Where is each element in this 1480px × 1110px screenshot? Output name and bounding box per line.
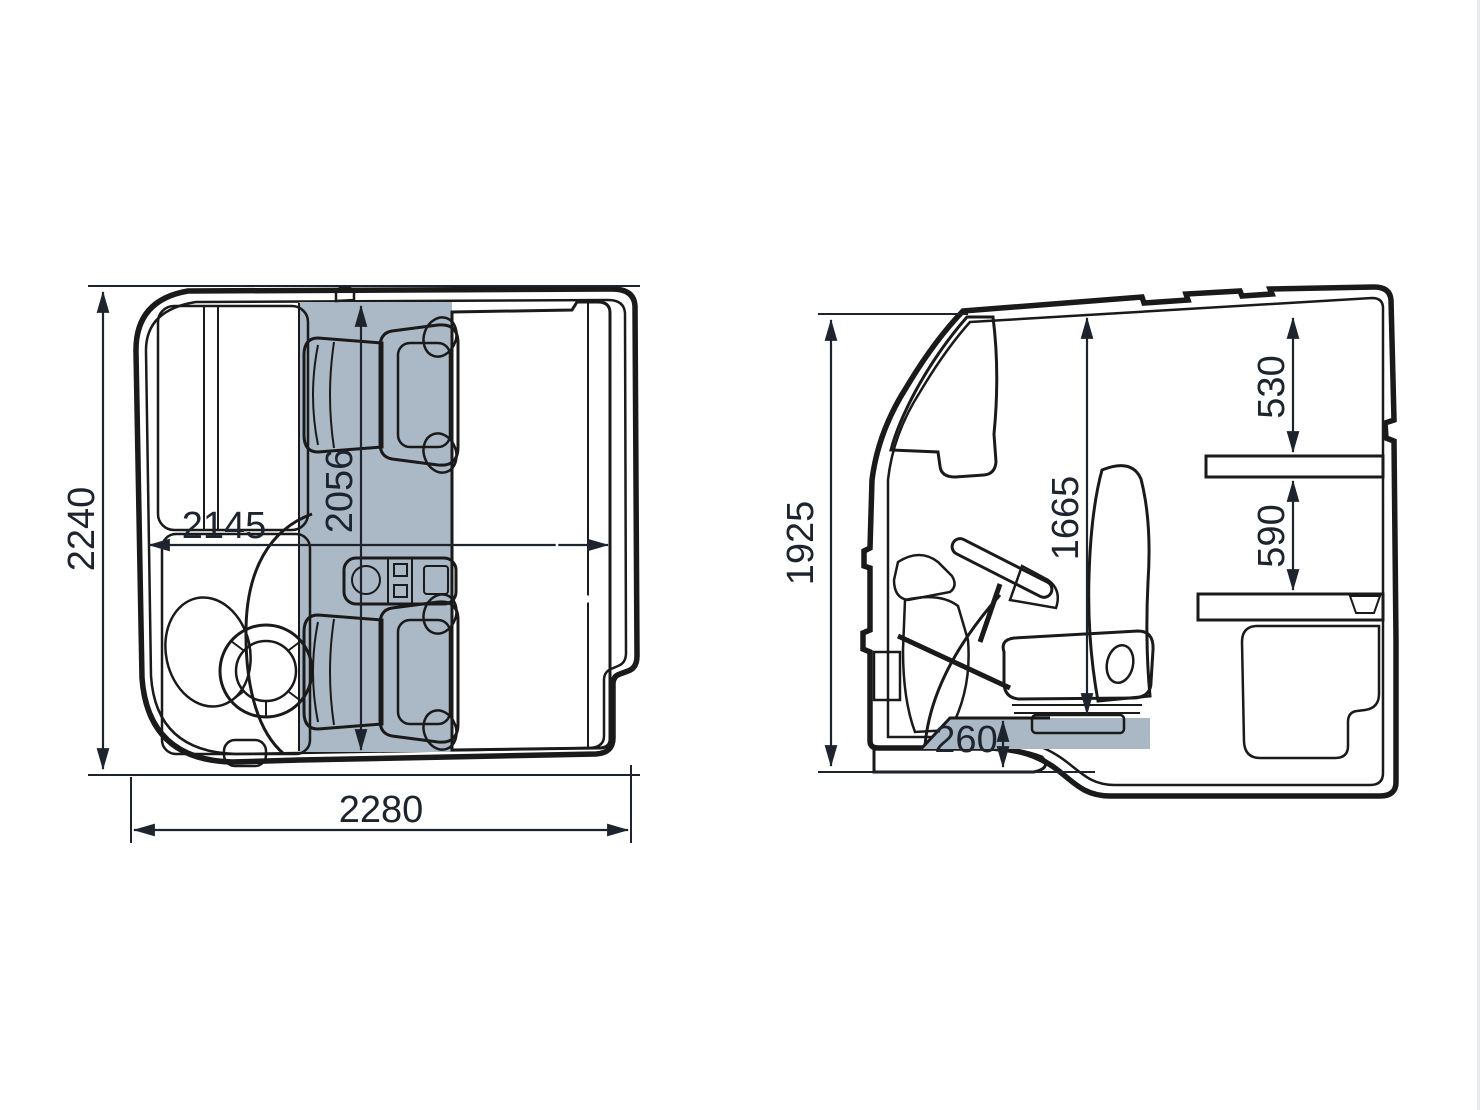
dim-label-interior-height: 1665	[1045, 476, 1087, 561]
front-panel-upper	[158, 306, 308, 530]
dim-label-interior-width: 2145	[182, 505, 267, 547]
lower-bunk	[1198, 594, 1383, 620]
dim-label-bunk-gap: 590	[1251, 504, 1293, 567]
dim-label-cab-width: 2280	[339, 789, 424, 831]
storage-box	[1242, 626, 1379, 758]
dim-label-bunk-length: 2005	[515, 420, 557, 505]
cab-dimensions-figure: 2145 2056 2005 749 2240 2280	[0, 0, 1480, 1110]
steering-wheel-side	[949, 536, 1054, 600]
dim-label-cab-depth: 2240	[61, 487, 103, 572]
dim-bunk-gap: 590	[1251, 481, 1293, 590]
dim-label-roof-to-upper-bunk: 530	[1251, 355, 1293, 418]
upper-bunk	[1206, 456, 1383, 477]
dim-label-cab-height: 1925	[780, 501, 822, 586]
cab-side-interior	[888, 298, 1383, 785]
dim-bunk-width: 749	[459, 556, 599, 599]
dim-label-engine-tunnel: 260	[934, 719, 997, 761]
dim-label-bunk-width: 749	[474, 556, 537, 598]
dim-bunk-length: 2005	[515, 320, 557, 738]
wiper-blade	[898, 636, 1010, 688]
cab-top-view: 2145 2056 2005 749 2240 2280	[61, 286, 640, 843]
cab-side-view: 1925 1665 530 590 260	[780, 287, 1396, 796]
dimension-drawing-page: 2145 2056 2005 749 2240 2280	[0, 0, 1480, 1110]
dash-hood-bulge	[155, 589, 260, 714]
dim-label-interior-depth: 2056	[319, 449, 361, 534]
bunk-bed-surface	[452, 302, 610, 750]
bunk-bed-top	[452, 302, 610, 750]
front-panel-seam-lines	[204, 307, 218, 529]
dim-cab-width: 2280	[131, 765, 631, 843]
dim-interior-height: 1665	[1045, 318, 1087, 714]
dim-roof-to-upper-bunk: 530	[1251, 318, 1293, 452]
seat-back-cutout	[1103, 643, 1136, 686]
dim-engine-tunnel: 260	[934, 719, 1003, 767]
windshield	[891, 317, 997, 477]
